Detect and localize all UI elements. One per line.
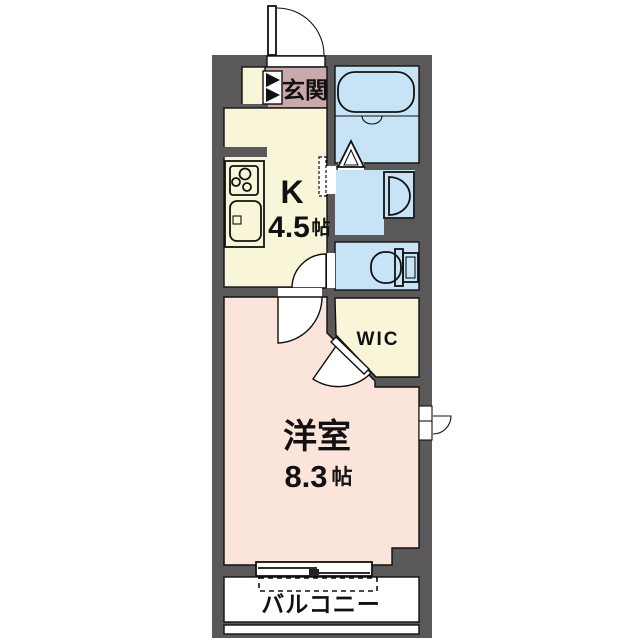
living-room-label: 洋室 <box>283 417 351 456</box>
meter-box-door-swing-icon <box>433 416 451 434</box>
floor-plan: 玄関 K 4.5 帖 WIC 洋室 8.3 帖 バルコニー <box>0 0 640 640</box>
kitchen-label: K <box>280 174 303 210</box>
balcony-railing <box>224 625 419 634</box>
kitchen-room-door-opening <box>278 288 322 297</box>
sliding-window-lock <box>309 569 319 575</box>
toilet-door-opening <box>327 253 335 288</box>
kitchen-wall-jog <box>212 147 267 157</box>
entrance-opening <box>267 56 325 67</box>
washroom-door-opening <box>326 166 336 194</box>
meter-box-opening <box>419 406 432 440</box>
wic-label: WIC <box>357 329 400 350</box>
kitchen-size-label: 4.5 <box>268 211 310 244</box>
floor-plan-drawing: 玄関 K 4.5 帖 WIC 洋室 8.3 帖 バルコニー <box>0 0 640 640</box>
living-room-size-unit-label: 帖 <box>332 466 353 489</box>
entrance-label: 玄関 <box>282 77 328 103</box>
washroom-sliding-door-icon <box>319 157 326 196</box>
washroom-area <box>335 170 384 235</box>
bifold-door-box <box>263 71 282 104</box>
living-room-size-label: 8.3 <box>284 459 327 494</box>
entrance-door-leaf-icon <box>268 6 276 55</box>
entrance-closet-area <box>242 67 265 105</box>
balcony-label: バルコニー <box>261 591 381 617</box>
entrance-door-swing-icon <box>277 8 324 55</box>
kitchen-size-unit-label: 帖 <box>311 216 330 239</box>
